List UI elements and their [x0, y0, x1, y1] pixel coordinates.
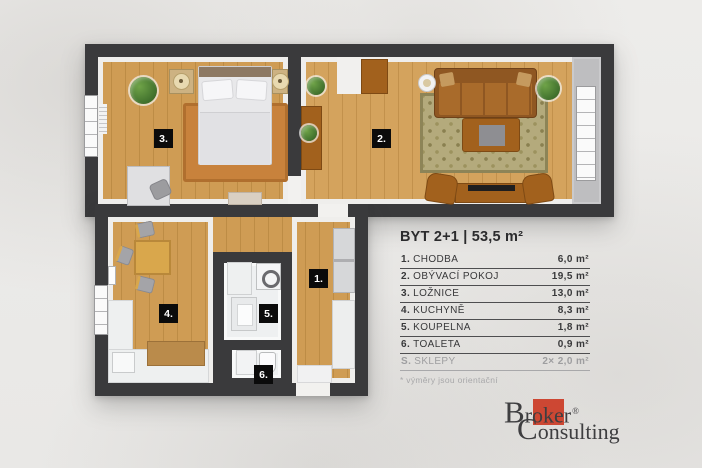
washing-machine — [256, 263, 281, 290]
tv-stand — [455, 183, 528, 203]
door-opening-living-hallway — [318, 204, 348, 217]
kitchen-sink — [112, 352, 135, 373]
entrance-door-opening — [296, 383, 330, 396]
corridor-floor — [213, 217, 292, 252]
plant-living-corner — [307, 77, 325, 95]
legend-row: 1.CHODBA 6,0 m² — [400, 252, 590, 269]
room-badge-obyvaci-pokoj: 2. — [372, 129, 391, 148]
room-badge-kuchyne: 4. — [159, 304, 178, 323]
radiator — [99, 104, 107, 134]
sofa-cushions — [439, 83, 532, 115]
living-room-niche — [337, 57, 362, 94]
legend-row: 3.LOŽNICE 13,0 m² — [400, 286, 590, 303]
plant-living-right — [537, 77, 560, 100]
logo-word-consulting: Consulting — [517, 416, 620, 445]
living-room-window — [576, 86, 596, 181]
plant-bedroom — [130, 77, 157, 104]
legend-row: 5.KOUPELNA 1,8 m² — [400, 320, 590, 337]
dining-table — [134, 240, 171, 275]
bed-pillow-left — [201, 79, 234, 102]
wall-picture — [108, 266, 116, 285]
bed-blanket — [200, 112, 270, 165]
living-cabinet — [361, 59, 388, 94]
legend-row: 4.KUCHYNĚ 8,3 m² — [400, 303, 590, 320]
bed-headboard — [199, 67, 271, 77]
bedside-lamp-left — [173, 73, 190, 90]
bathroom-sink — [231, 297, 257, 331]
armchair-left — [424, 172, 459, 205]
room-badge-toaleta: 6. — [254, 365, 273, 384]
entrance-mat — [297, 365, 332, 383]
legend-title: BYT 2+1 | 53,5 m² — [400, 229, 590, 245]
room-badge-chodba: 1. — [309, 269, 328, 288]
bedside-lamp-right — [272, 73, 289, 90]
bed-pillow-right — [235, 79, 267, 101]
plant-on-sideboard — [301, 125, 317, 141]
bathroom-shelf — [227, 262, 252, 295]
hallway-wardrobe — [333, 228, 355, 293]
hallway-shoe-bench — [332, 300, 355, 369]
bedroom-window — [84, 95, 98, 157]
registered-mark: ® — [572, 406, 579, 416]
area-legend: BYT 2+1 | 53,5 m² 1.CHODBA 6,0 m² 2.OBÝV… — [400, 229, 590, 385]
tv — [468, 185, 515, 191]
sofa-pillow-right — [516, 72, 532, 88]
legend-row: 6.TOALETA 0,9 m² — [400, 337, 590, 354]
armchair-right — [521, 172, 555, 205]
legend-footnote: * výměry jsou orientační — [400, 375, 590, 385]
legend-rows: 1.CHODBA 6,0 m² 2.OBÝVACÍ POKOJ 19,5 m² … — [400, 252, 590, 371]
coffee-table-tray — [479, 125, 505, 146]
floor-lamp — [418, 74, 436, 92]
room-badge-koupelna: 5. — [259, 304, 278, 323]
legend-row: 2.OBÝVACÍ POKOJ 19,5 m² — [400, 269, 590, 286]
room-badge-loznice: 3. — [154, 129, 173, 148]
door-opening-bedroom-living — [288, 176, 301, 204]
double-bed — [198, 66, 272, 165]
sofa-pillow-left — [439, 72, 455, 87]
sofa — [434, 68, 537, 118]
coffee-table — [462, 118, 520, 152]
kitchen-worktop — [147, 341, 205, 366]
legend-row-sklepy: S.SKLEPY 2× 2,0 m² — [400, 354, 590, 371]
kitchen-window — [94, 285, 108, 335]
bedroom-bench — [228, 192, 262, 205]
floorplan-canvas: 1. 2. 3. 4. 5. 6. BYT 2+1 | 53,5 m² 1.CH… — [0, 0, 702, 468]
broker-consulting-logo: Broker® Consulting — [504, 398, 679, 458]
